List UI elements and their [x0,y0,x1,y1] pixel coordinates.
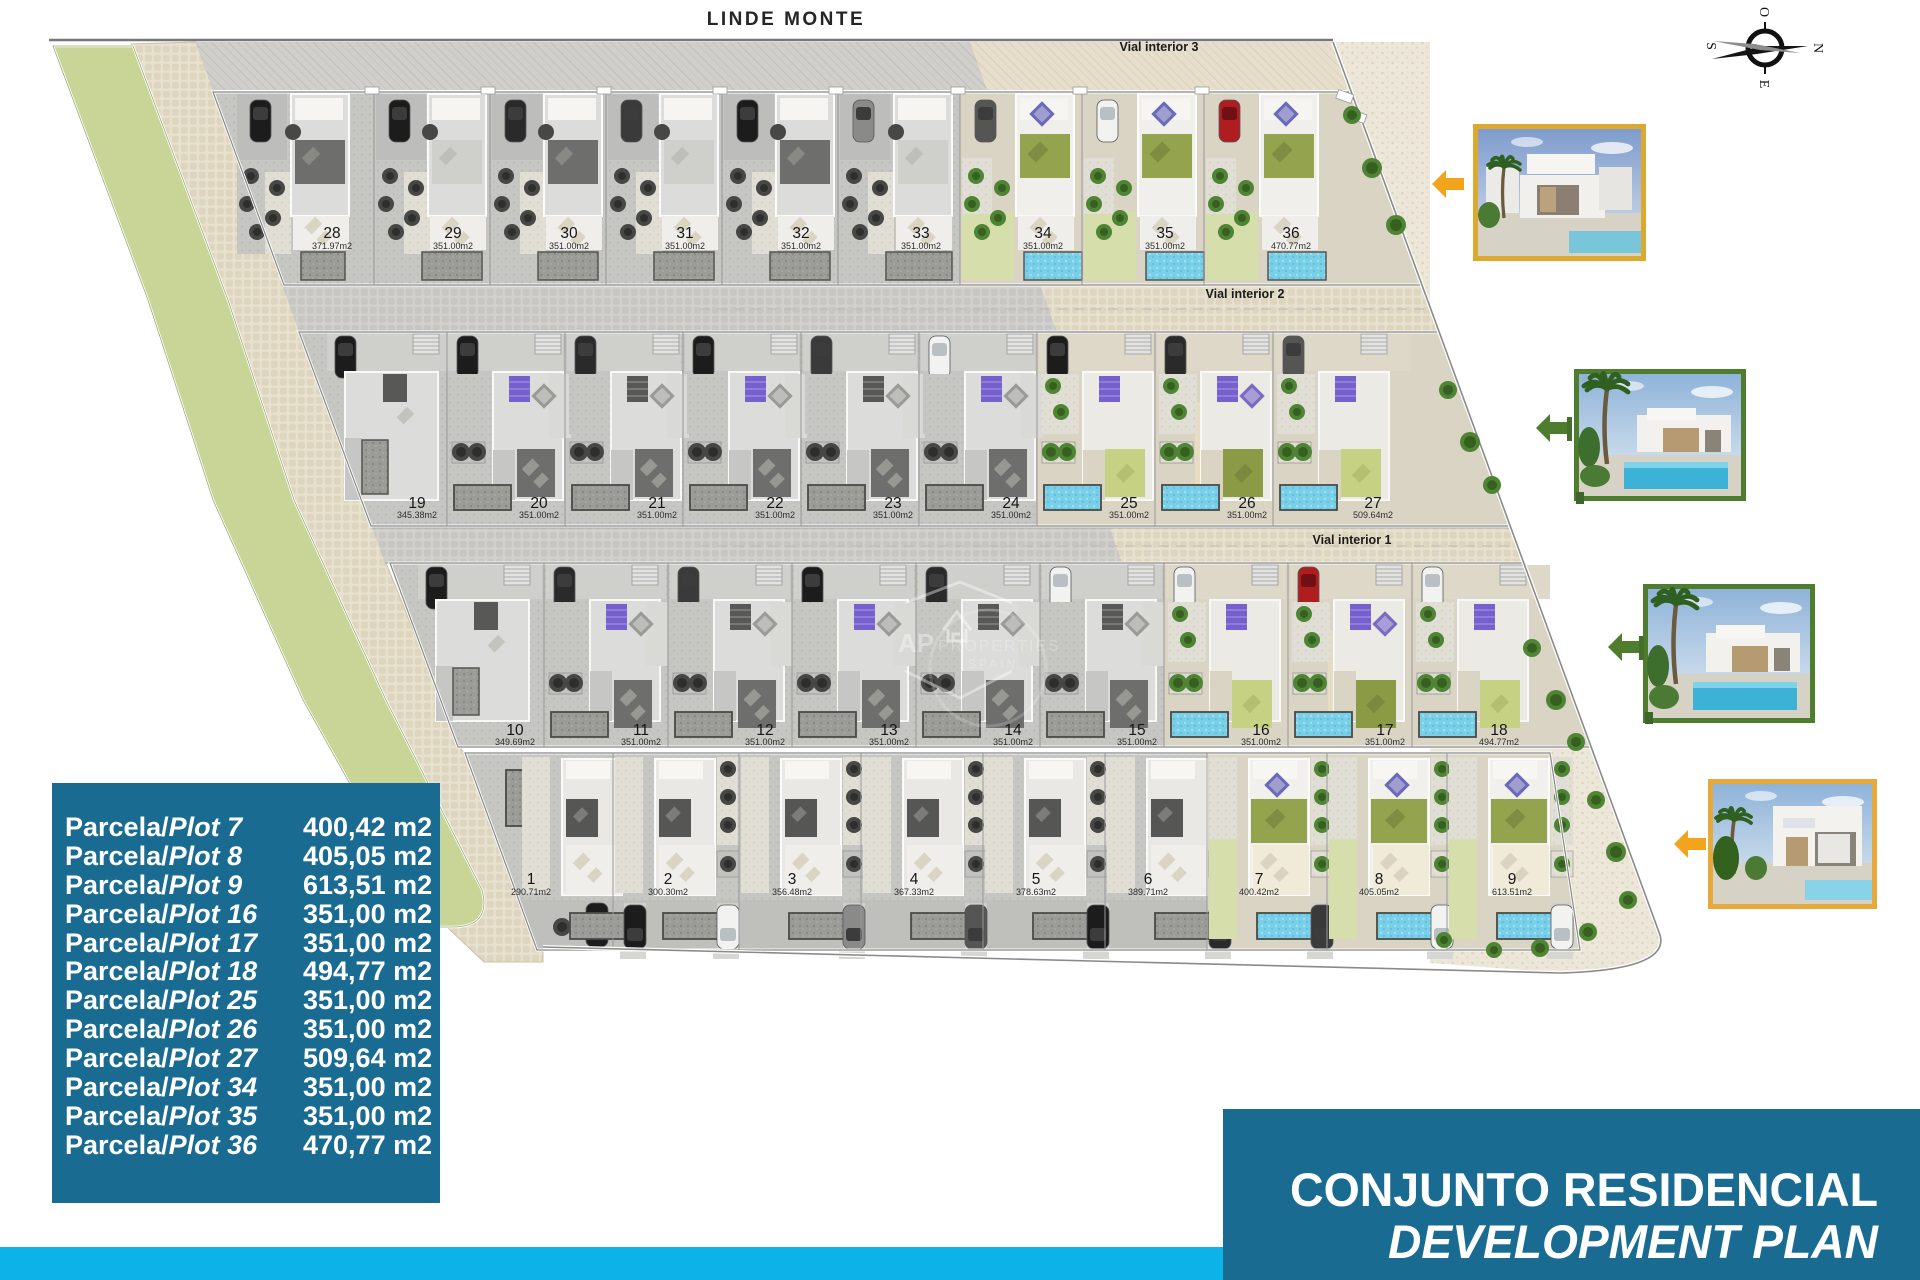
svg-text:351.00m2: 351.00m2 [549,241,589,251]
svg-text:351,00 m2: 351,00 m2 [303,1072,432,1102]
svg-text:367.33m2: 367.33m2 [894,887,934,897]
svg-text:1: 1 [527,871,536,888]
svg-text:351.00m2: 351.00m2 [1117,737,1157,747]
svg-text:290.71m2: 290.71m2 [511,887,551,897]
svg-text:351,00 m2: 351,00 m2 [303,899,432,929]
svg-text:351,00 m2: 351,00 m2 [303,928,432,958]
svg-text:28: 28 [323,225,340,242]
svg-text:Parcela/Plot 27: Parcela/Plot 27 [65,1043,259,1073]
svg-text:6: 6 [1144,871,1153,888]
svg-text:351.00m2: 351.00m2 [1023,241,1063,251]
svg-text:494.77m2: 494.77m2 [1479,737,1519,747]
svg-text:Vial interior 2: Vial interior 2 [1206,287,1285,301]
svg-text:32: 32 [792,225,809,242]
svg-text:Parcela/Plot 18: Parcela/Plot 18 [65,956,257,986]
svg-text:349.69m2: 349.69m2 [495,737,535,747]
svg-text:3: 3 [788,871,797,888]
svg-text:351.00m2: 351.00m2 [901,241,941,251]
svg-text:Parcela/Plot 35: Parcela/Plot 35 [65,1101,258,1131]
svg-text:36: 36 [1282,225,1299,242]
svg-text:2: 2 [664,871,673,888]
svg-text:470,77 m2: 470,77 m2 [303,1130,432,1160]
svg-text:29: 29 [444,225,461,242]
svg-text:351.00m2: 351.00m2 [637,510,677,520]
svg-text:Vial interior 3: Vial interior 3 [1120,40,1199,54]
svg-text:5: 5 [1032,871,1041,888]
svg-text:509.64m2: 509.64m2 [1353,510,1393,520]
svg-text:Parcela/Plot 25: Parcela/Plot 25 [65,985,258,1015]
svg-text:SPAIN: SPAIN [968,657,1018,671]
svg-text:DEVELOPMENT PLAN: DEVELOPMENT PLAN [1388,1215,1879,1268]
svg-text:470.77m2: 470.77m2 [1271,241,1311,251]
svg-text:E: E [1756,80,1771,89]
svg-text:400,42 m2: 400,42 m2 [303,812,432,842]
svg-text:7: 7 [1255,871,1264,888]
svg-text:N: N [1810,43,1825,53]
svg-text:400.42m2: 400.42m2 [1239,887,1279,897]
svg-text:351.00m2: 351.00m2 [873,510,913,520]
svg-text:405.05m2: 405.05m2 [1359,887,1399,897]
svg-text:494,77 m2: 494,77 m2 [303,956,432,986]
svg-text:351.00m2: 351.00m2 [621,737,661,747]
svg-text:9: 9 [1508,871,1517,888]
svg-text:Parcela/Plot 16: Parcela/Plot 16 [65,899,258,929]
svg-text:351.00m2: 351.00m2 [745,737,785,747]
svg-text:389.71m2: 389.71m2 [1128,887,1168,897]
svg-text:Parcela/Plot 34: Parcela/Plot 34 [65,1072,257,1102]
svg-text:351.00m2: 351.00m2 [755,510,795,520]
svg-text:351.00m2: 351.00m2 [433,241,473,251]
svg-text:LINDE MONTE: LINDE MONTE [707,9,865,30]
svg-text:CONJUNTO RESIDENCIAL: CONJUNTO RESIDENCIAL [1290,1163,1878,1216]
svg-text:8: 8 [1375,871,1384,888]
svg-text:Parcela/Plot 7: Parcela/Plot 7 [65,812,244,842]
svg-text:Parcela/Plot 36: Parcela/Plot 36 [65,1130,258,1160]
svg-text:351.00m2: 351.00m2 [1365,737,1405,747]
svg-text:351,00 m2: 351,00 m2 [303,1014,432,1044]
svg-text:351.00m2: 351.00m2 [519,510,559,520]
svg-text:613,51 m2: 613,51 m2 [303,870,432,900]
svg-text:378.63m2: 378.63m2 [1016,887,1056,897]
svg-text:405,05 m2: 405,05 m2 [303,841,432,871]
svg-text:30: 30 [560,225,578,242]
svg-text:PROPERTIES: PROPERTIES [938,638,1061,655]
svg-text:4: 4 [910,871,919,888]
svg-text:351.00m2: 351.00m2 [1241,737,1281,747]
svg-text:AP: AP [898,628,934,658]
svg-text:O: O [1756,7,1771,17]
svg-text:300.30m2: 300.30m2 [648,887,688,897]
svg-text:509,64 m2: 509,64 m2 [303,1043,432,1073]
svg-text:351.00m2: 351.00m2 [781,241,821,251]
svg-text:351.00m2: 351.00m2 [991,510,1031,520]
svg-text:31: 31 [676,225,693,242]
svg-text:34: 34 [1034,225,1052,242]
svg-text:Vial interior 1: Vial interior 1 [1313,533,1392,547]
svg-text:613.51m2: 613.51m2 [1492,887,1532,897]
svg-text:351.00m2: 351.00m2 [993,737,1033,747]
svg-text:356.48m2: 356.48m2 [772,887,812,897]
svg-text:Parcela/Plot 9: Parcela/Plot 9 [65,870,242,900]
svg-text:33: 33 [912,225,929,242]
svg-text:S: S [1703,42,1718,50]
svg-text:345.38m2: 345.38m2 [397,510,437,520]
svg-text:35: 35 [1156,225,1173,242]
svg-text:351,00 m2: 351,00 m2 [303,1101,432,1131]
svg-text:351.00m2: 351.00m2 [1109,510,1149,520]
svg-text:351.00m2: 351.00m2 [1145,241,1185,251]
svg-text:Parcela/Plot 8: Parcela/Plot 8 [65,841,242,871]
svg-text:351.00m2: 351.00m2 [665,241,705,251]
svg-text:371.97m2: 371.97m2 [312,241,352,251]
svg-text:351.00m2: 351.00m2 [1227,510,1267,520]
svg-text:Parcela/Plot 26: Parcela/Plot 26 [65,1014,258,1044]
svg-text:Parcela/Plot 17: Parcela/Plot 17 [65,928,259,958]
svg-text:351,00 m2: 351,00 m2 [303,985,432,1015]
svg-text:351.00m2: 351.00m2 [869,737,909,747]
